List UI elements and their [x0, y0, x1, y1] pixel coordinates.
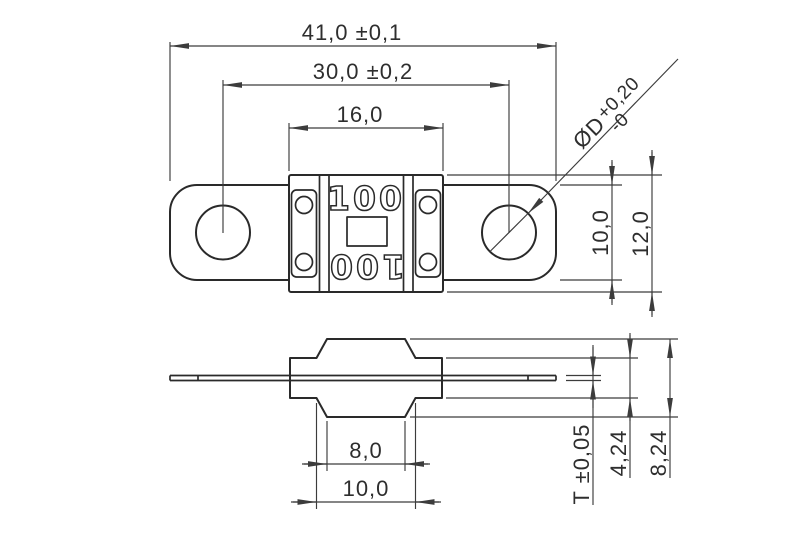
dim-strip-height: 10,0 — [560, 160, 622, 305]
dim-base-width-label: 10,0 — [343, 476, 390, 501]
dim-overall-thickness: 8,24 — [410, 339, 678, 478]
rating-marking-bottom: 100 — [327, 247, 405, 286]
dim-housing-width: 16,0 — [289, 102, 443, 171]
fuse-technical-drawing: 100 100 41,0 ±0,1 30,0 ±0,2 16,0 ØD +0,2 — [0, 0, 800, 539]
dim-housing-width-label: 16,0 — [337, 102, 384, 127]
dim-slot-width-label: 8,0 — [349, 438, 383, 463]
top-view: 100 100 41,0 ±0,1 30,0 ±0,2 16,0 ØD +0,2 — [170, 20, 678, 317]
dim-strip-height-label: 10,0 — [588, 209, 613, 256]
dim-slot-width: 8,0 — [302, 421, 430, 471]
dim-strip-thickness-label: T ±0,05 — [569, 423, 594, 504]
dim-overall-length: 41,0 ±0,1 — [170, 20, 556, 181]
dim-housing-thickness: 4,24 — [446, 333, 638, 478]
dim-overall-thickness-label: 8,24 — [646, 430, 671, 477]
dim-strip-thickness: T ±0,05 — [566, 345, 601, 505]
technical-drawing-page: 100 100 41,0 ±0,1 30,0 ±0,2 16,0 ØD +0,2 — [0, 0, 800, 539]
dim-overall-length-label: 41,0 ±0,1 — [302, 20, 403, 45]
dim-housing-height-label: 12,0 — [628, 210, 653, 257]
dim-hole-spacing-label: 30,0 ±0,2 — [313, 59, 414, 84]
side-view: 8,0 10,0 T ±0,05 4,24 — [170, 333, 678, 509]
housing-side-profile — [290, 339, 442, 417]
dim-housing-thickness-label: 4,24 — [606, 430, 631, 477]
rating-marking-top: 100 — [327, 179, 405, 218]
